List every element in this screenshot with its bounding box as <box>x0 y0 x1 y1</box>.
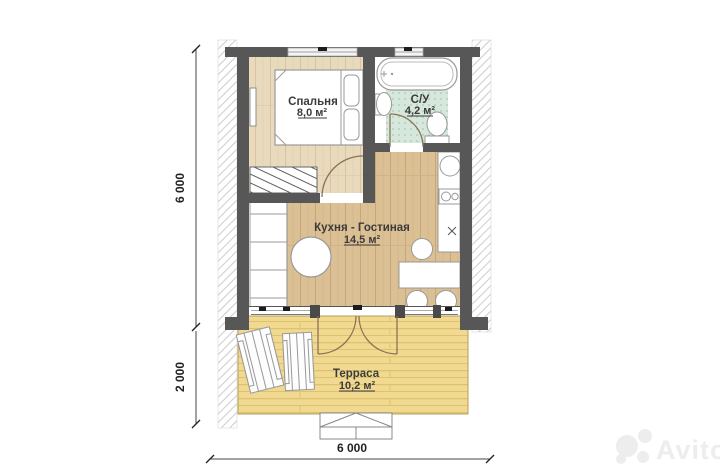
window-tick <box>353 305 362 310</box>
window-tick <box>283 307 290 311</box>
bathtub <box>377 58 457 90</box>
corner-cap <box>225 317 249 330</box>
post <box>433 305 441 318</box>
kitchen-counter <box>438 152 460 252</box>
kitchen-living-area: 14,5 м² <box>344 234 381 246</box>
floor-plan-svg: Спальня 8,0 м² С/У 4,2 м² Кухня - Гостин… <box>0 0 720 472</box>
terrace-label: Терраса <box>333 368 380 380</box>
window-tick <box>259 307 266 311</box>
bedroom-window <box>288 47 357 56</box>
bar-stool <box>412 239 433 260</box>
lounge-chair <box>283 332 315 390</box>
bathroom-south-wall <box>423 143 460 152</box>
bar-table <box>399 262 460 288</box>
bathroom-window <box>395 47 423 56</box>
window-tick <box>318 47 327 51</box>
bathroom-sink <box>375 93 392 116</box>
bedroom-bathroom-wall <box>363 57 375 203</box>
bathroom-area: 4,2 м² <box>405 105 435 117</box>
wardrobe <box>250 167 317 193</box>
entrance-steps <box>320 413 392 439</box>
radiator <box>250 88 256 126</box>
pillow <box>344 75 359 106</box>
avito-watermark-text: Avito <box>656 435 720 465</box>
right-wall <box>460 47 472 330</box>
window-tick <box>445 307 452 311</box>
stove <box>439 189 460 204</box>
avito-watermark: Avito <box>616 429 720 465</box>
pillow <box>344 109 359 140</box>
dimension-left-terrace: 2 000 <box>173 331 200 428</box>
floor-plan-image: Спальня 8,0 м² С/У 4,2 м² Кухня - Гостин… <box>0 0 720 472</box>
svg-text:6 000: 6 000 <box>337 441 367 455</box>
dimension-left-house: 6 000 <box>173 45 200 331</box>
corner-cap <box>460 317 488 330</box>
kitchen-sink <box>440 156 460 176</box>
kitchen-living-label: Кухня - Гостиная <box>314 222 410 234</box>
dimension-bottom: 6 000 <box>206 441 494 463</box>
svg-text:6 000: 6 000 <box>173 173 187 203</box>
bedroom-area: 8,0 м² <box>297 107 327 119</box>
terrace-area: 10,2 м² <box>339 380 376 392</box>
dining-table <box>291 237 331 277</box>
bedroom-south-wall <box>249 193 320 203</box>
window-tick <box>404 47 412 51</box>
avito-logo-icon <box>616 429 652 464</box>
svg-text:2 000: 2 000 <box>173 362 187 392</box>
bathroom-south-wall <box>375 143 390 152</box>
left-wall <box>237 47 249 330</box>
